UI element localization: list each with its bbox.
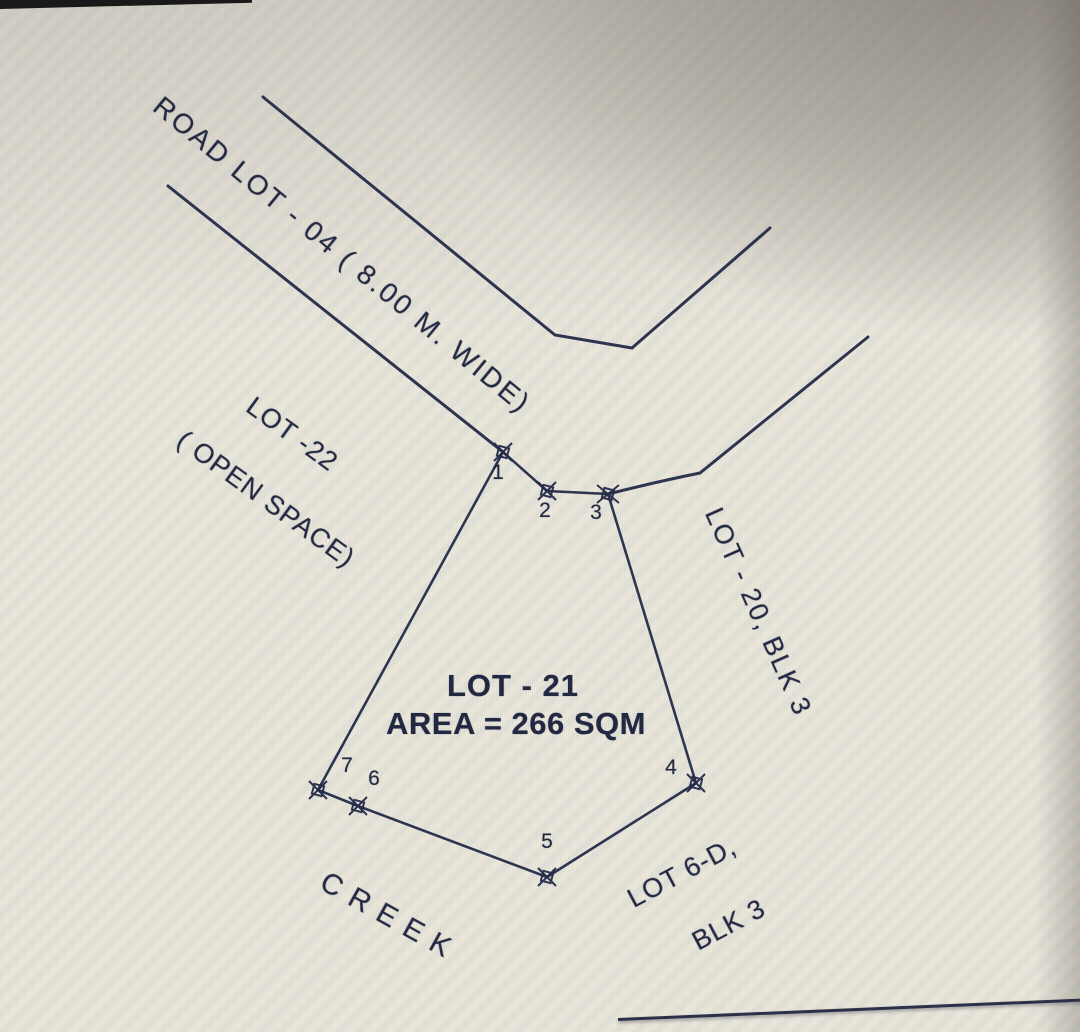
corner-label-1: 1	[492, 461, 504, 485]
corner-label-5: 5	[541, 830, 553, 854]
corner-marker-4	[687, 774, 705, 792]
road-lot04-upper-edge-line	[263, 97, 770, 348]
corner-label-4: 4	[665, 756, 677, 780]
lot21-title: LOT - 21	[447, 668, 579, 704]
corner-label-6: 6	[368, 767, 380, 791]
corner-label-3: 3	[590, 501, 602, 525]
right-road-lower-edge-line	[608, 337, 868, 494]
corner-label-2: 2	[539, 499, 551, 523]
corner-marker-1	[494, 443, 512, 461]
corner-label-7: 7	[341, 754, 353, 778]
corner-marker-7	[309, 781, 327, 799]
corner-marker-5	[538, 868, 556, 886]
corner-marker-6	[349, 797, 367, 815]
survey-plan-photo: ROAD LOT - 04 ( 8.00 M. WIDE) LOT -22 ( …	[0, 0, 1080, 1032]
lot21-area-label: AREA = 266 SQM	[386, 706, 646, 742]
